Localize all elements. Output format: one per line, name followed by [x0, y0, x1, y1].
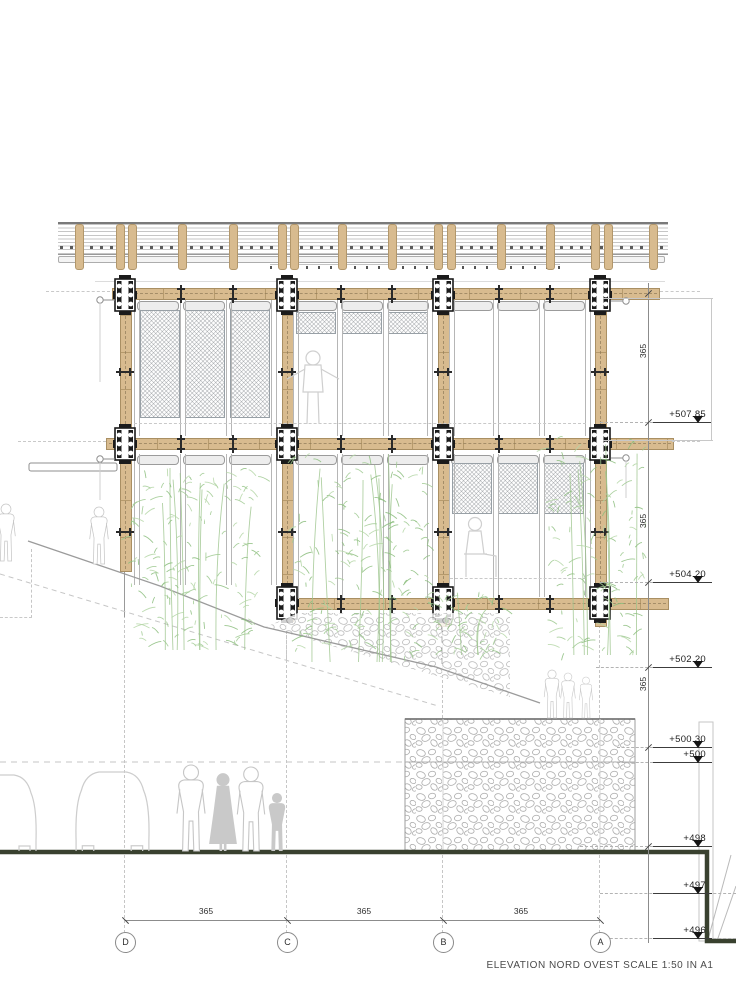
grid-bubble-b: B — [433, 932, 454, 953]
level-dash-504 — [600, 582, 653, 583]
spot-level-icon — [693, 576, 703, 583]
grid-bubble-c: C — [277, 932, 298, 953]
drawing-title: ELEVATION NORD OVEST SCALE 1:50 IN A1 — [450, 960, 736, 971]
elevation-marker-496: +496 — [653, 938, 712, 939]
extension-tick-mid — [603, 440, 713, 441]
spot-level-icon — [693, 416, 703, 423]
annotations-layer: +507.85 +504.20 +502.20 +500.30 +500 +49… — [0, 0, 736, 1000]
grid-bubble-d: D — [115, 932, 136, 953]
elevation-marker-504: +504.20 — [653, 582, 712, 583]
elevation-marker-498: +498 — [653, 846, 712, 847]
spot-level-icon — [693, 887, 703, 894]
elevation-drawing-sheet: +507.85 +504.20 +502.20 +500.30 +500 +49… — [0, 0, 736, 1000]
level-dash-498 — [580, 846, 653, 847]
bottom-dimension-line — [125, 920, 600, 921]
dim-label-365-v1: 365 — [638, 334, 648, 368]
dim-label-365-v3: 365 — [638, 667, 648, 701]
dim-label-365-h3: 365 — [503, 906, 539, 916]
elevation-marker-507: +507.85 — [653, 422, 712, 423]
spot-level-icon — [693, 840, 703, 847]
spot-level-icon — [693, 756, 703, 763]
right-extension-line — [711, 298, 712, 440]
grid-bubble-a: A — [590, 932, 611, 953]
extension-tick-top — [603, 298, 713, 299]
elevation-marker-502: +502.20 — [653, 667, 712, 668]
dim-label-365-v2: 365 — [638, 504, 648, 538]
dim-label-365-h2: 365 — [346, 906, 382, 916]
level-dash-507 — [600, 422, 653, 423]
elevation-marker-50030: +500.30 — [653, 747, 712, 748]
spot-level-icon — [693, 932, 703, 939]
spot-level-icon — [693, 661, 703, 668]
spot-level-icon — [693, 741, 703, 748]
elevation-marker-500: +500 — [653, 762, 712, 763]
elevation-marker-497: +497 — [653, 893, 712, 894]
dim-label-365-h1: 365 — [188, 906, 224, 916]
